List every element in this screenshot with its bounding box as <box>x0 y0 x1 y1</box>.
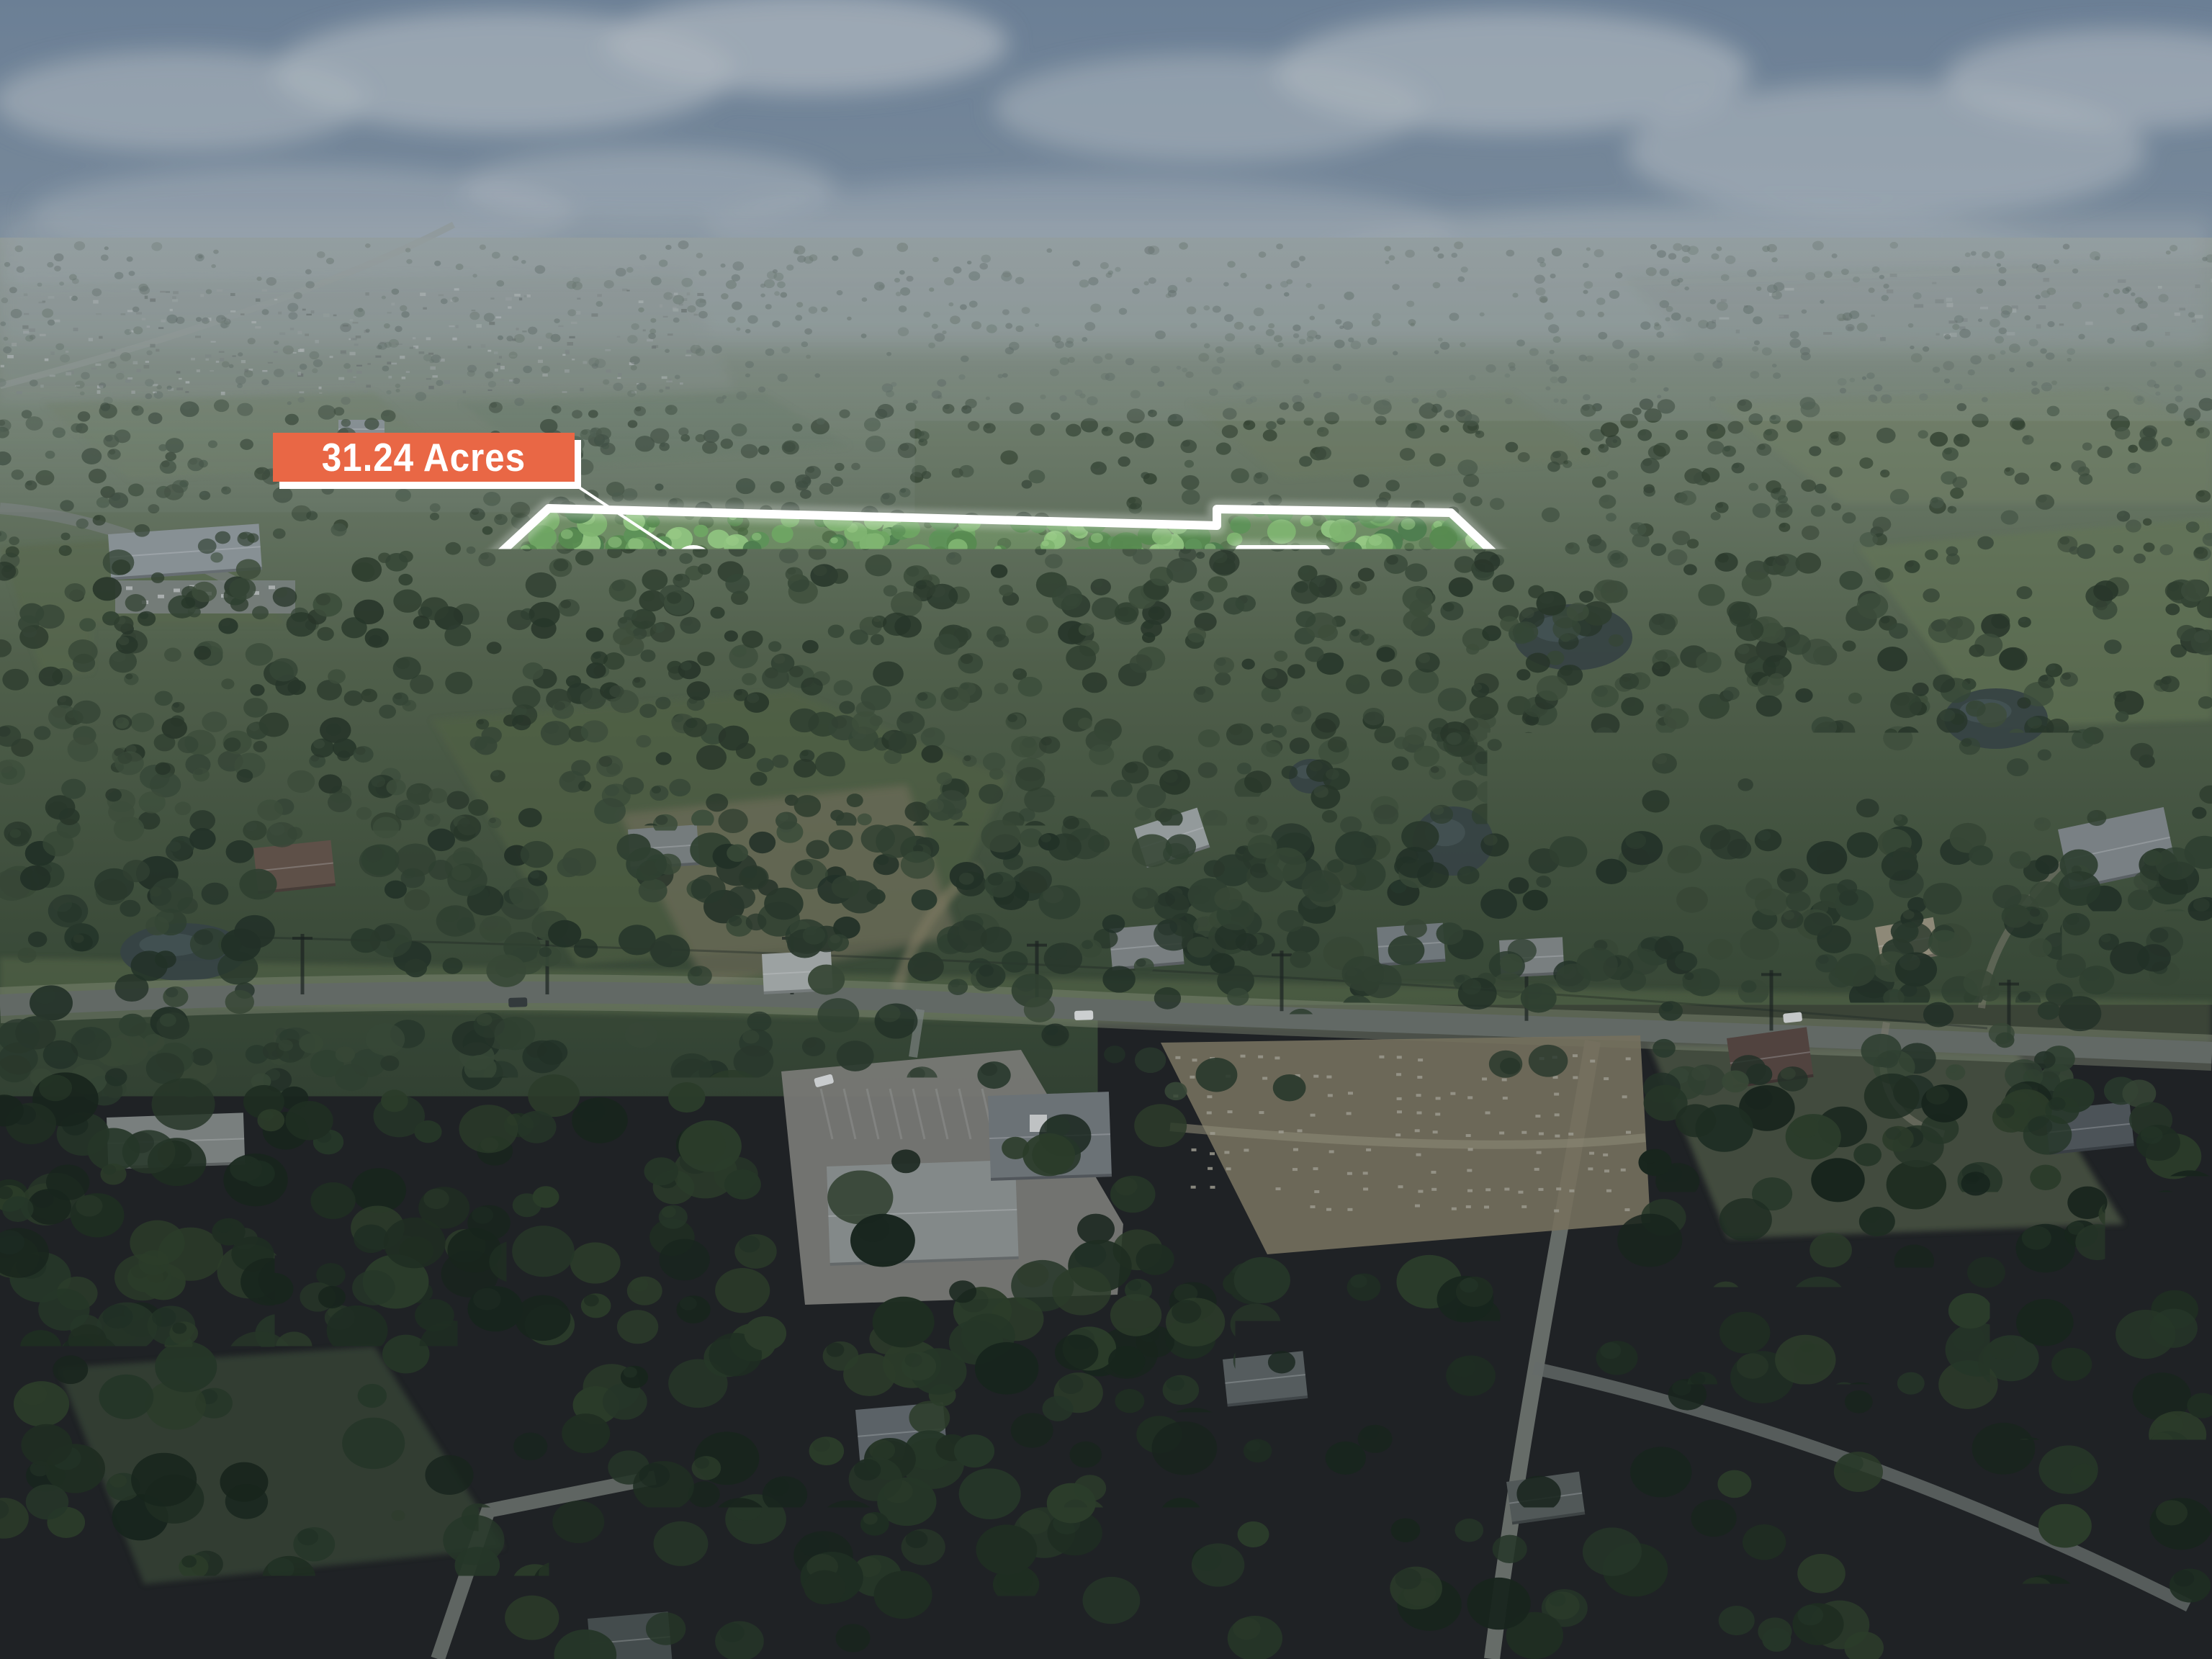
survey-disclaimer-text: Lot Lines Do Not Represent Official Surv… <box>9 1609 714 1656</box>
survey-disclaimer: Lot Lines Do Not Represent Official Surv… <box>9 1609 848 1656</box>
lot-marker-dot <box>685 558 701 574</box>
road-label: Tryon Rd <box>1247 979 1419 1025</box>
dim-overlay <box>0 0 2212 1659</box>
aerial-photo-scene <box>0 0 2212 1659</box>
acreage-badge: 31.24 Acres <box>273 433 575 482</box>
acreage-badge-label: 31.24 Acres <box>322 434 526 480</box>
road-label-text: Tryon Rd <box>1247 979 1410 1025</box>
aerial-photo: 31.24 Acres Tryon Rd Lot Lines Do Not Re… <box>0 0 2212 1659</box>
